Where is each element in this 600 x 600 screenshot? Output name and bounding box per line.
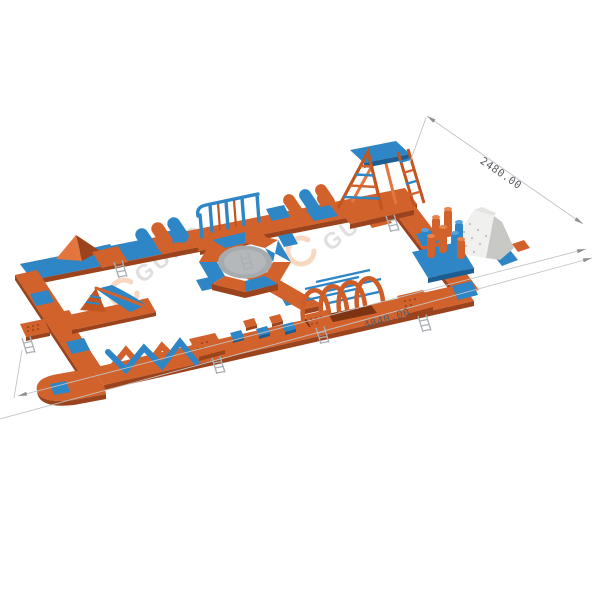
length-dimension-line-2 bbox=[0, 258, 592, 419]
arrow-icon bbox=[577, 249, 586, 253]
product-render-canvas: GUNG GUNG bbox=[0, 0, 600, 600]
arrow-icon bbox=[575, 217, 584, 224]
water-slide bbox=[64, 285, 156, 334]
pillar-posts bbox=[421, 207, 465, 259]
width-dimension-label: 2480.00 bbox=[478, 155, 524, 192]
arrow-icon bbox=[18, 392, 27, 396]
arrow-icon bbox=[427, 116, 436, 123]
arrow-icon bbox=[583, 258, 592, 262]
extension-line-top-right bbox=[410, 118, 426, 162]
water-park-illustration: GUNG GUNG bbox=[0, 0, 600, 600]
extension-line-bottom-left bbox=[14, 350, 22, 398]
